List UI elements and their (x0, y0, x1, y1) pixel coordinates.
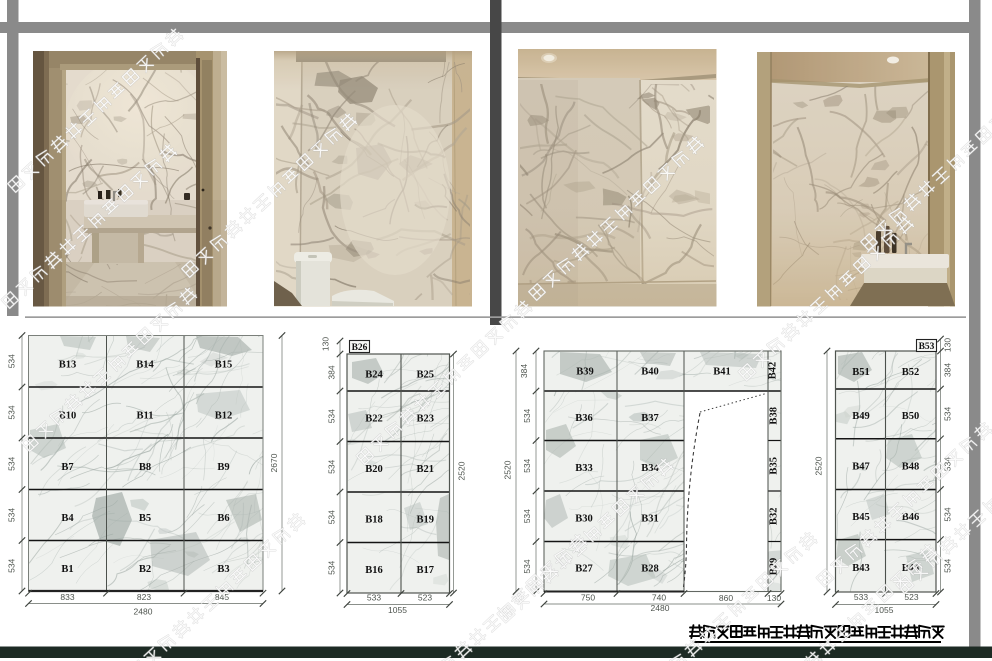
svg-text:534: 534 (7, 456, 17, 470)
svg-text:750: 750 (581, 593, 595, 603)
svg-text:B8: B8 (139, 462, 151, 473)
svg-text:740: 740 (652, 593, 666, 603)
svg-text:534: 534 (522, 408, 532, 422)
svg-text:B1: B1 (61, 564, 73, 575)
svg-text:B37: B37 (641, 413, 659, 424)
svg-text:384: 384 (327, 365, 337, 379)
svg-text:B32: B32 (769, 507, 780, 525)
svg-text:B4: B4 (61, 513, 74, 524)
svg-text:2520: 2520 (457, 461, 467, 480)
svg-text:B50: B50 (902, 411, 920, 422)
svg-text:534: 534 (943, 507, 953, 521)
svg-text:2480: 2480 (651, 603, 670, 613)
svg-text:B12: B12 (215, 411, 233, 422)
svg-text:B40: B40 (641, 367, 659, 378)
svg-text:534: 534 (327, 409, 337, 423)
svg-text:B3: B3 (217, 564, 229, 575)
svg-text:2480: 2480 (134, 607, 153, 617)
svg-text:534: 534 (7, 354, 17, 368)
svg-text:B49: B49 (852, 411, 870, 422)
svg-text:B26: B26 (352, 343, 368, 353)
svg-text:534: 534 (522, 559, 532, 573)
svg-text:B17: B17 (416, 565, 434, 576)
svg-text:B47: B47 (852, 461, 870, 472)
svg-text:B36: B36 (575, 413, 593, 424)
svg-text:B11: B11 (137, 411, 154, 422)
svg-text:B35: B35 (769, 457, 780, 475)
svg-text:B38: B38 (769, 407, 780, 425)
svg-text:B33: B33 (575, 463, 593, 474)
svg-text:2520: 2520 (503, 460, 513, 479)
svg-text:B21: B21 (416, 464, 434, 475)
svg-text:B14: B14 (136, 359, 154, 370)
svg-text:B20: B20 (365, 464, 383, 475)
svg-text:B9: B9 (217, 462, 229, 473)
svg-text:534: 534 (7, 558, 17, 572)
svg-text:B23: B23 (416, 413, 434, 424)
svg-text:B25: B25 (416, 370, 434, 381)
svg-text:B53: B53 (919, 342, 935, 352)
svg-text:B24: B24 (365, 370, 383, 381)
svg-text:130: 130 (321, 337, 331, 351)
svg-text:B6: B6 (217, 513, 229, 524)
svg-text:B19: B19 (416, 515, 434, 526)
svg-text:B42: B42 (768, 362, 779, 380)
svg-text:B51: B51 (852, 367, 870, 378)
svg-text:B15: B15 (215, 359, 233, 370)
svg-text:B28: B28 (641, 564, 659, 575)
svg-text:833: 833 (60, 592, 74, 602)
svg-text:860: 860 (719, 593, 733, 603)
svg-text:534: 534 (522, 509, 532, 523)
svg-text:534: 534 (522, 458, 532, 472)
svg-text:534: 534 (943, 558, 953, 572)
svg-text:B27: B27 (575, 564, 593, 575)
svg-text:B7: B7 (61, 462, 73, 473)
svg-text:523: 523 (418, 593, 432, 603)
svg-text:B43: B43 (852, 563, 870, 574)
svg-text:B30: B30 (575, 514, 593, 525)
svg-text:533: 533 (854, 592, 868, 602)
svg-text:534: 534 (327, 510, 337, 524)
svg-text:B45: B45 (852, 512, 870, 523)
svg-text:130: 130 (943, 338, 953, 352)
svg-text:B18: B18 (365, 515, 383, 526)
svg-text:533: 533 (367, 593, 381, 603)
svg-text:B2: B2 (139, 564, 151, 575)
svg-text:B13: B13 (59, 359, 77, 370)
svg-text:534: 534 (327, 459, 337, 473)
svg-text:384: 384 (943, 363, 953, 377)
svg-text:B41: B41 (713, 367, 731, 378)
svg-text:B16: B16 (365, 565, 383, 576)
svg-text:384: 384 (519, 364, 529, 378)
svg-text:2520: 2520 (814, 456, 824, 475)
svg-text:B31: B31 (641, 514, 659, 525)
svg-text:1055: 1055 (388, 605, 407, 615)
svg-text:534: 534 (943, 407, 953, 421)
svg-text:534: 534 (7, 405, 17, 419)
svg-text:2670: 2670 (269, 453, 279, 472)
svg-text:534: 534 (7, 508, 17, 522)
svg-text:534: 534 (327, 560, 337, 574)
svg-text:B52: B52 (902, 367, 920, 378)
svg-text:B48: B48 (902, 461, 920, 472)
svg-text:B22: B22 (365, 413, 383, 424)
svg-text:823: 823 (137, 592, 151, 602)
svg-text:B39: B39 (576, 367, 594, 378)
svg-text:B5: B5 (139, 513, 151, 524)
svg-text:523: 523 (904, 592, 918, 602)
